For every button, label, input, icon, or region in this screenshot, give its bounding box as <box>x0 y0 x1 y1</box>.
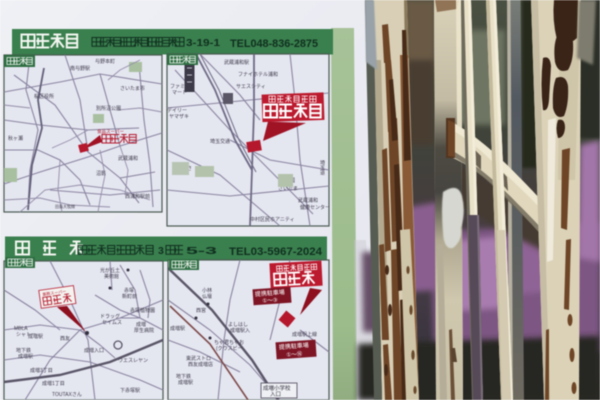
svg-text:仏壇: 仏壇 <box>202 293 212 300</box>
svg-text:地下鉄: 地下鉄 <box>176 373 191 380</box>
svg-text:西友成増店: 西友成増店 <box>188 361 213 368</box>
svg-text:入口: 入口 <box>270 391 281 398</box>
svg-text:桜区役所: 桜区役所 <box>34 93 54 100</box>
svg-text:成増: 成増 <box>136 321 146 328</box>
svg-text:赤塚: 赤塚 <box>124 287 134 294</box>
svg-text:健康センター: 健康センター <box>300 204 330 211</box>
svg-text:西宮: 西宮 <box>196 307 206 314</box>
svg-text:さいたま市: さいたま市 <box>120 85 145 92</box>
svg-text:ちゃ君ちゃお: ちゃ君ちゃお <box>214 339 244 346</box>
svg-text:5-3: 5-3 <box>186 245 217 257</box>
svg-text:沼影: 沼影 <box>96 170 106 177</box>
svg-text:成増3丁目: 成増3丁目 <box>30 367 53 374</box>
svg-text:食品スーパー: 食品スーパー <box>97 128 124 135</box>
svg-text:成増入口: 成増入口 <box>84 347 104 354</box>
svg-text:①〜③: ①〜③ <box>262 297 278 305</box>
svg-text:武蔵浦和: 武蔵浦和 <box>298 197 318 204</box>
svg-text:マート: マート <box>172 90 187 96</box>
svg-text:シャトー: シャトー <box>16 332 36 338</box>
svg-text:美術館: 美術館 <box>104 273 119 280</box>
svg-text:成増駅: 成増駅 <box>18 353 33 360</box>
svg-text:地下鉄: 地下鉄 <box>16 347 31 354</box>
svg-text:赤塚植物園: 赤塚植物園 <box>130 307 155 314</box>
svg-text:3: 3 <box>158 245 164 257</box>
svg-text:小林: 小林 <box>202 287 212 294</box>
svg-text:西浦和駅前: 西浦和駅前 <box>125 193 150 200</box>
svg-text:デイリー: デイリー <box>167 107 187 114</box>
svg-text:東武ストロ: 東武ストロ <box>186 355 211 362</box>
svg-text:セイムス: セイムス <box>102 320 122 326</box>
svg-text:フナイホテル浦和: フナイホテル浦和 <box>238 71 278 78</box>
svg-text:中村区民ホアニティ: 中村区民ホアニティ <box>250 216 295 223</box>
svg-text:秋ヶ瀬: 秋ヶ瀬 <box>8 135 23 142</box>
svg-text:与野本町: 与野本町 <box>95 58 115 65</box>
svg-text:光が丘土: 光が丘土 <box>100 267 120 274</box>
svg-text:ヤマザキ: ヤマザキ <box>169 114 189 120</box>
svg-text:3-19-1: 3-19-1 <box>186 37 220 49</box>
svg-text:成増小学校: 成増小学校 <box>263 384 291 392</box>
svg-text:ドラッグ: ドラッグ <box>100 313 120 320</box>
svg-text:TOUTAXさん: TOUTAXさん <box>52 391 82 398</box>
svg-text:武蔵浦和駅: 武蔵浦和駅 <box>224 59 249 66</box>
svg-text:ウエスレヤン: ウエスレヤン <box>118 357 148 364</box>
svg-text:埼玉交通: 埼玉交通 <box>210 138 230 145</box>
svg-text:成増駅入: 成増駅入 <box>230 327 250 334</box>
svg-text:厚生病院: 厚生病院 <box>134 327 154 334</box>
svg-text:TEL03-5967-2024: TEL03-5967-2024 <box>229 246 323 258</box>
svg-text:成増駅: 成増駅 <box>170 325 185 332</box>
svg-text:TEL048-836-2875: TEL048-836-2875 <box>230 38 318 50</box>
svg-text:新町前: 新町前 <box>122 293 137 300</box>
svg-text:サエスシティ: サエスシティ <box>236 84 266 90</box>
svg-text:成増駅: 成増駅 <box>178 379 193 386</box>
svg-text:田島大牧線: 田島大牧線 <box>55 203 75 209</box>
svg-text:成増1丁目: 成増1丁目 <box>42 380 65 387</box>
svg-text:成増駅上線: 成増駅上線 <box>292 331 317 338</box>
svg-text:(クウスビー: (クウスビー <box>216 345 243 352</box>
svg-text:西友: 西友 <box>60 335 70 342</box>
svg-text:埼玉道: 埼玉道 <box>319 159 325 176</box>
svg-text:別所沼公園: 別所沼公園 <box>96 105 121 112</box>
svg-text:武蔵浦和: 武蔵浦和 <box>118 155 138 162</box>
svg-text:下赤塚駅: 下赤塚駅 <box>120 387 140 394</box>
svg-text:南与野駅: 南与野駅 <box>70 65 90 72</box>
